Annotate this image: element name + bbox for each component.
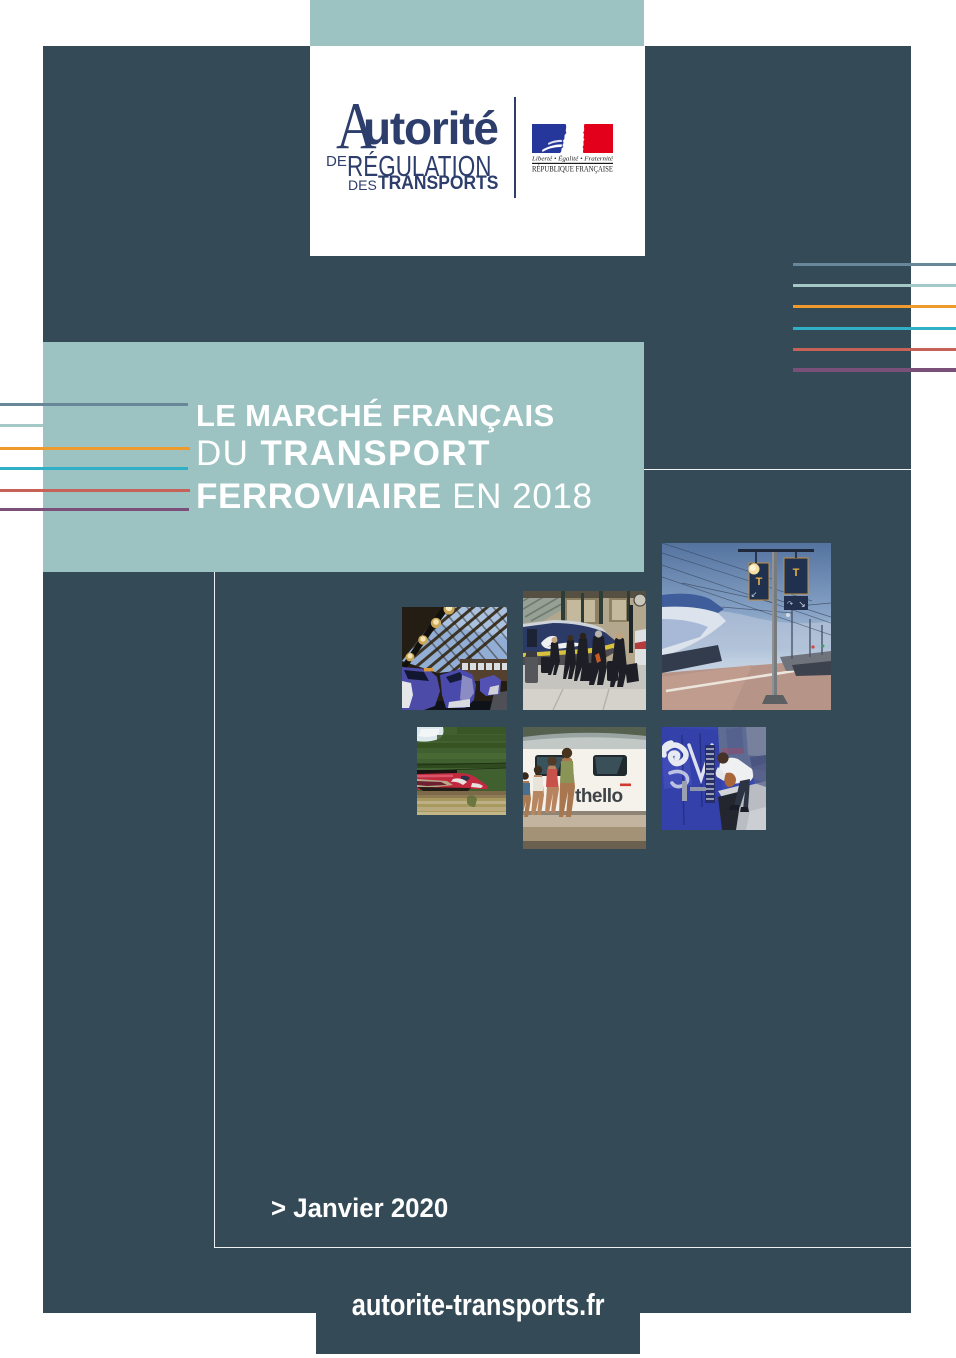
svg-text:thello: thello [575, 786, 623, 807]
svg-text:T: T [756, 576, 763, 588]
svg-text:Liberté • Égalité • Fraternité: Liberté • Égalité • Fraternité [532, 155, 613, 163]
svg-text:RÉPUBLIQUE FRANÇAISE: RÉPUBLIQUE FRANÇAISE [532, 164, 613, 174]
svg-text:↷: ↷ [787, 601, 793, 608]
svg-text:↙: ↙ [751, 590, 758, 599]
svg-text:T: T [793, 567, 800, 579]
svg-text:↘: ↘ [798, 599, 806, 609]
